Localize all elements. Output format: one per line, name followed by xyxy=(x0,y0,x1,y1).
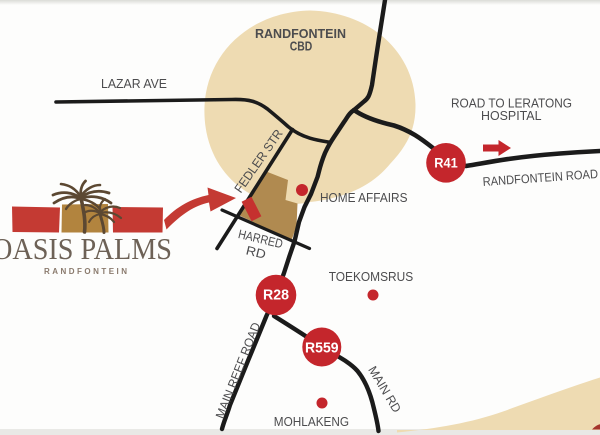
svg-text:OASIS PALMS: OASIS PALMS xyxy=(0,231,172,266)
svg-text:LAZAR AVE: LAZAR AVE xyxy=(101,77,167,91)
svg-text:R41: R41 xyxy=(434,154,458,170)
svg-text:HOSPITAL: HOSPITAL xyxy=(481,109,542,123)
svg-text:R559: R559 xyxy=(305,340,339,356)
svg-text:R28: R28 xyxy=(263,287,289,303)
svg-text:HOME AFFAIRS: HOME AFFAIRS xyxy=(320,191,408,205)
svg-text:TOEKOMSRUS: TOEKOMSRUS xyxy=(329,270,414,284)
svg-text:MOHLAKENG: MOHLAKENG xyxy=(274,415,349,429)
svg-text:CBD: CBD xyxy=(290,40,313,54)
